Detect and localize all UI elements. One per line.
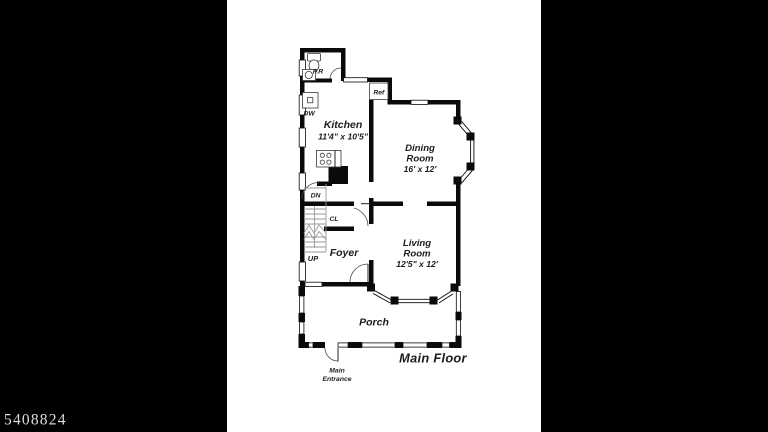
stairs-up-label: UP	[308, 254, 319, 263]
main-entrance-label-2: Entrance	[322, 376, 351, 383]
powder-room-label: P.R	[313, 69, 324, 76]
floor-title: Main Floor	[399, 351, 467, 366]
porch-label: Porch	[359, 317, 389, 329]
main-entrance-label: Main	[329, 368, 344, 375]
dining-room-label-2: Room	[406, 154, 434, 165]
living-room-dims: 12'5" x 12'	[396, 259, 439, 269]
floor-plan-paper	[227, 0, 541, 432]
mls-photo-id: 5408824	[4, 412, 67, 429]
living-room-label: Living	[403, 238, 431, 249]
dishwasher-label: DW	[304, 111, 316, 118]
floor-plan-image: P.R DW Ref Kitchen 11'4" x 10'5" Dining …	[0, 0, 768, 432]
refrigerator-label: Ref	[373, 90, 385, 97]
kitchen-label: Kitchen	[324, 119, 363, 131]
living-room-label-2: Room	[403, 249, 431, 260]
listing-photo-frame: P.R DW Ref Kitchen 11'4" x 10'5" Dining …	[0, 0, 768, 432]
closet-label: CL	[329, 216, 338, 223]
kitchen-dims: 11'4" x 10'5"	[318, 132, 369, 142]
stairs-down-label: DN	[311, 193, 322, 200]
dishwasher	[303, 93, 319, 109]
foyer-label: Foyer	[330, 247, 360, 259]
dining-room-label: Dining	[405, 143, 435, 154]
range-stove	[317, 151, 342, 168]
dining-room-dims: 16' x 12'	[404, 164, 438, 174]
